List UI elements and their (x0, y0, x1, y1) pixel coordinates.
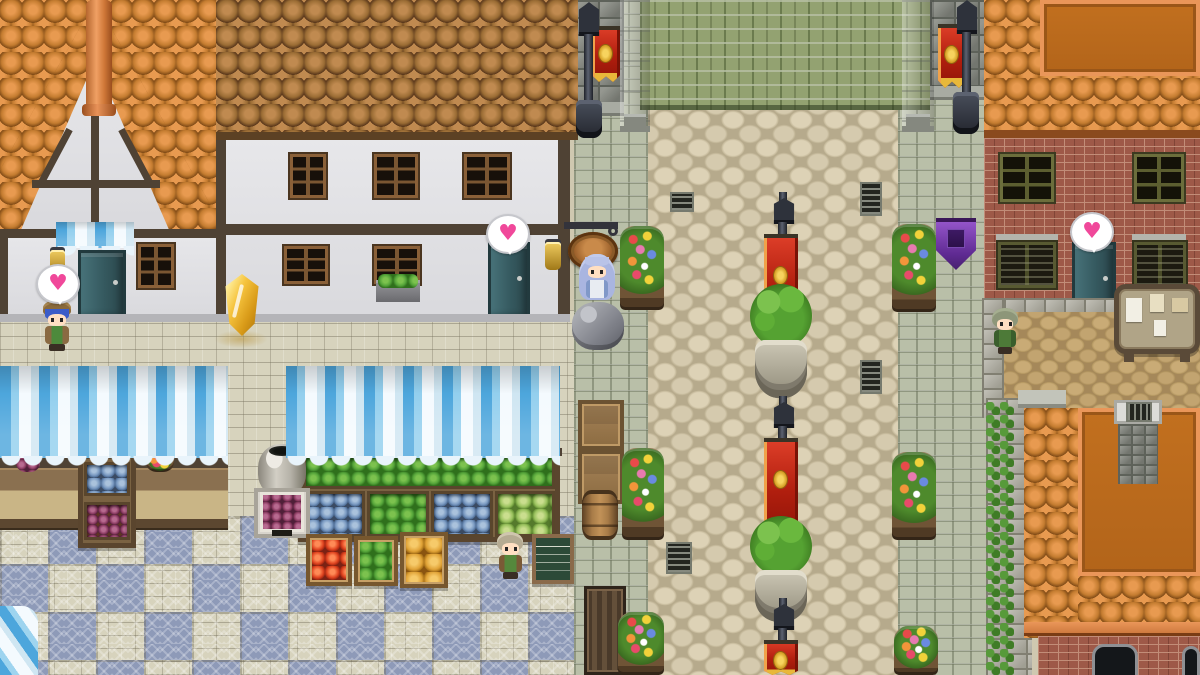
topiary-a-pot (755, 340, 807, 398)
drain-grate-2 (862, 184, 880, 214)
bubble-tail (54, 295, 66, 311)
brick-window-1 (1000, 154, 1054, 202)
hall-pillar-left-foot (624, 114, 646, 132)
notice-paper-1[interactable] (1126, 298, 1142, 322)
heart-icon: ♥ (498, 223, 518, 245)
stall-a-shelf-jugs (84, 462, 130, 496)
npc-eyes (1000, 322, 1003, 326)
heart-bubble-right: ♥ (1070, 212, 1114, 252)
npc-bangs (585, 257, 609, 266)
drain-grate-1 (672, 194, 692, 210)
divider-wall-cap (1018, 390, 1066, 408)
notice-board-leg-1 (1124, 350, 1134, 362)
brick-lintel-2 (1132, 234, 1186, 242)
shop-roof-trim (216, 132, 578, 140)
brick-house-roof-trim (984, 130, 1200, 138)
npc-feet (49, 344, 65, 351)
npc-feet (998, 347, 1012, 354)
stall-b-bin-cabbage[interactable] (495, 491, 555, 537)
flower-stand-4[interactable] (892, 224, 936, 312)
flower-stand-1[interactable] (620, 226, 664, 310)
awning-corner-bottom-left (0, 606, 38, 675)
chimney-pipe-base (82, 104, 116, 116)
topiary-a-bush (750, 284, 812, 348)
heart-icon: ♥ (48, 273, 68, 295)
br-roof-trim (1024, 622, 1200, 636)
shop-roof (216, 0, 578, 138)
brick-window-l2 (1134, 242, 1186, 288)
br-roof-bottom-band (1078, 576, 1200, 624)
stall-b-bin-jars-1[interactable] (303, 491, 365, 537)
heart-icon: ♥ (1082, 221, 1102, 243)
npc-body (586, 280, 608, 298)
flower-stand-2[interactable] (622, 448, 664, 540)
plum-crate[interactable] (260, 492, 304, 532)
urn-stand-slot (272, 530, 292, 536)
npc-eyes (505, 547, 508, 551)
br-arch-window-2 (1182, 646, 1200, 675)
shop-wall-base (216, 314, 570, 322)
plaza-banner-c (764, 640, 798, 675)
street-lamp-left-base (576, 100, 602, 138)
street-lamp-left-pole (584, 34, 593, 104)
stall-b-bin-greens[interactable] (367, 491, 429, 537)
shop-window-u2 (374, 154, 418, 198)
gray-boulder[interactable] (572, 302, 624, 350)
plaza-lamp-c-pole (778, 628, 787, 640)
drain-grate-3 (862, 362, 880, 392)
npc-eyes (51, 318, 54, 322)
drain-grate-4 (668, 544, 690, 572)
bubble-tail (1088, 243, 1100, 259)
chalkboard-menu-sign[interactable] (532, 534, 574, 584)
br-roof-left-band (1024, 408, 1078, 638)
street-barrel[interactable] (582, 490, 618, 540)
plaza-lamp-b-pole (778, 426, 787, 440)
shop-window-l1 (284, 246, 328, 284)
notice-board-leg-2 (1180, 350, 1190, 362)
heart-bubble-left: ♥ (36, 264, 80, 304)
shop-window-u1 (290, 154, 326, 198)
tomato-crate[interactable] (306, 534, 352, 586)
notice-paper-3[interactable] (1172, 298, 1188, 312)
chimney-pipe (86, 0, 112, 114)
chimney-hole (1128, 404, 1150, 420)
npc-shopkeeper[interactable] (494, 532, 526, 582)
tudor-wall-beam-left (0, 232, 8, 320)
shop-flower-box-plants (378, 274, 418, 288)
awning-left (0, 366, 228, 458)
street-lamp-right-pole (962, 32, 971, 96)
green-hall-roof (640, 0, 930, 110)
crate-stack-top[interactable] (578, 400, 624, 450)
npc-feet (503, 572, 518, 579)
shop-wall-lantern (545, 242, 561, 270)
npc-body (45, 326, 69, 344)
npc-body (994, 330, 1016, 347)
shop-window-u3 (464, 154, 510, 198)
flower-stand-6[interactable] (894, 626, 938, 675)
brick-window-l1 (998, 242, 1056, 288)
br-arch-window-1 (1092, 644, 1138, 675)
npc-eyes (591, 270, 594, 274)
hall-pillar-right-foot (906, 114, 930, 132)
notice-paper-2[interactable] (1150, 294, 1164, 312)
heart-bubble-center: ♥ (486, 214, 530, 254)
ivy-wall (986, 402, 1014, 675)
sign-bracket-curl (608, 226, 618, 236)
bubble-tail (504, 245, 516, 261)
chimney-shaft (1118, 424, 1158, 484)
game-viewport: ♥ ♥ ♥ (0, 0, 1200, 675)
brick-lintel-1 (996, 234, 1058, 242)
stall-a-shelf-pots (84, 502, 130, 540)
brick-window-2 (1134, 154, 1184, 202)
brick-house-roof-flat (1040, 0, 1200, 76)
street-lamp-right-base (953, 92, 979, 134)
npc-villager-woman[interactable] (990, 308, 1020, 358)
tudor-door-awning (56, 222, 134, 248)
tudor-wall-base (0, 314, 216, 322)
tudor-door[interactable] (78, 250, 126, 314)
npc-body (499, 555, 522, 572)
notice-paper-4[interactable] (1154, 320, 1166, 336)
awning-right (286, 366, 560, 458)
stall-b-bin-jars-2[interactable] (431, 491, 493, 537)
pumpkin-crate[interactable] (400, 532, 448, 588)
flower-stand-5[interactable] (892, 452, 936, 540)
topiary-b-bush (750, 516, 812, 576)
hall-pillar-left (620, 0, 650, 132)
greens-crate[interactable] (354, 536, 398, 586)
flower-stand-3[interactable] (618, 612, 664, 675)
tudor-gable-beam-h (32, 180, 160, 188)
hall-pillar-right (902, 0, 934, 132)
tudor-window (138, 244, 174, 288)
